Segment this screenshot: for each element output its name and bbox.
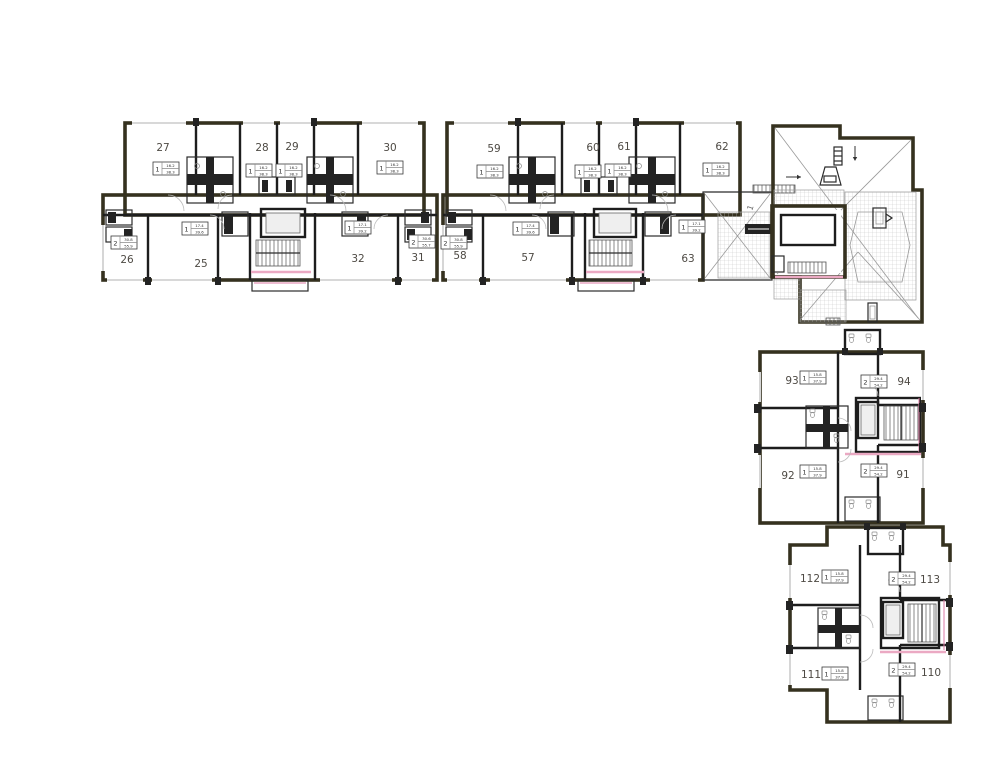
svg-text:37.9: 37.9 — [835, 674, 844, 679]
unit-number: 26 — [120, 254, 134, 266]
bath-pod-cluster — [818, 608, 860, 648]
svg-text:15.8: 15.8 — [813, 372, 822, 377]
unit-number: 91 — [896, 469, 909, 481]
unit-tag: 116.238.3 — [377, 161, 403, 174]
svg-text:54.2: 54.2 — [902, 579, 911, 584]
unit-number: 113 — [920, 574, 940, 586]
unit-tag: 115.837.9 — [822, 570, 848, 583]
unit-tag: 116.238.3 — [153, 162, 179, 175]
roof-step-icon — [826, 318, 840, 325]
unit-number: 63 — [681, 253, 694, 265]
svg-text:37.9: 37.9 — [813, 378, 822, 383]
svg-text:15.8: 15.8 — [835, 668, 844, 673]
block-b-partitions — [443, 123, 703, 280]
roof-stair-bulkhead — [772, 206, 845, 277]
svg-text:38.3: 38.3 — [716, 170, 725, 175]
svg-text:1: 1 — [379, 165, 383, 173]
unit-tag: 115.837.9 — [800, 371, 826, 384]
unit-tag: 116.238.3 — [246, 164, 272, 177]
svg-text:38.3: 38.3 — [588, 172, 597, 177]
roof-terrace — [772, 126, 922, 325]
roof-stairs-icon — [788, 262, 826, 273]
unit-number: 57 — [521, 252, 534, 264]
unit-number: 28 — [255, 142, 268, 154]
svg-text:54.2: 54.2 — [874, 471, 883, 476]
svg-text:16.2: 16.2 — [166, 163, 175, 168]
unit-number: 111 — [801, 669, 821, 681]
svg-text:1: 1 — [824, 574, 828, 582]
arrow-right-icon — [786, 175, 801, 179]
svg-text:37.9: 37.9 — [835, 577, 844, 582]
unit-number: 30 — [383, 142, 396, 154]
svg-text:1: 1 — [802, 375, 806, 383]
unit-tag: 230.655.7 — [409, 235, 435, 248]
unit-tag: 117.439.6 — [513, 222, 539, 235]
svg-text:30.8: 30.8 — [124, 237, 133, 242]
svg-text:1: 1 — [278, 168, 282, 176]
svg-text:54.2: 54.2 — [874, 382, 883, 387]
svg-text:1: 1 — [184, 226, 188, 234]
svg-text:17.4: 17.4 — [526, 223, 535, 228]
elevator-car-icon — [861, 405, 875, 435]
svg-text:16.2: 16.2 — [289, 165, 298, 170]
unit-tag: 230.855.9 — [111, 236, 137, 249]
unit-number: 32 — [351, 253, 364, 265]
unit-number: 112 — [800, 573, 820, 585]
svg-text:30.6: 30.6 — [422, 236, 431, 241]
unit-tag: 117.439.6 — [182, 222, 208, 235]
unit-tag: 116.238.3 — [477, 165, 503, 178]
svg-text:54.2: 54.2 — [902, 670, 911, 675]
svg-text:39.2: 39.2 — [692, 227, 701, 232]
elevator-car-icon — [599, 213, 631, 233]
svg-text:39.2: 39.2 — [358, 228, 367, 233]
roof-vent-icon — [820, 167, 841, 185]
svg-text:16.2: 16.2 — [490, 166, 499, 171]
svg-text:16.2: 16.2 — [259, 165, 268, 170]
svg-text:17.1: 17.1 — [358, 222, 367, 227]
unit-number: 110 — [921, 667, 941, 679]
svg-text:29.4: 29.4 — [874, 465, 883, 470]
svg-text:38.3: 38.3 — [289, 171, 298, 176]
roof-ladder-icon — [834, 147, 842, 165]
unit-tag: 116.238.3 — [575, 165, 601, 178]
bath-pod-cluster — [806, 406, 848, 448]
svg-text:38.3: 38.3 — [618, 171, 627, 176]
svg-text:1: 1 — [515, 226, 519, 234]
svg-text:29.4: 29.4 — [902, 573, 911, 578]
unit-tag: 116.238.3 — [703, 163, 729, 176]
unit-number: 93 — [785, 375, 798, 387]
unit-tag: 229.454.2 — [861, 375, 887, 388]
unit-tag: 117.139.2 — [679, 220, 705, 233]
arrow-down-icon — [853, 146, 857, 161]
svg-text:1: 1 — [479, 169, 483, 177]
unit-number: 59 — [487, 143, 500, 155]
svg-text:1: 1 — [824, 671, 828, 679]
unit-number: 61 — [617, 141, 630, 153]
svg-text:39.6: 39.6 — [195, 229, 204, 234]
svg-text:38.3: 38.3 — [490, 172, 499, 177]
svg-text:2: 2 — [891, 576, 895, 584]
unit-tag: 117.139.2 — [345, 221, 371, 234]
svg-text:39.6: 39.6 — [526, 229, 535, 234]
service-bay-bottom — [845, 497, 880, 521]
svg-text:29.4: 29.4 — [874, 376, 883, 381]
svg-text:55.9: 55.9 — [124, 243, 133, 248]
svg-text:2: 2 — [113, 240, 117, 248]
block-c — [754, 330, 926, 523]
svg-text:1: 1 — [248, 168, 252, 176]
elevator-car-icon — [886, 605, 900, 635]
svg-text:30.8: 30.8 — [454, 237, 463, 242]
svg-text:37.9: 37.9 — [813, 472, 822, 477]
svg-text:17.1: 17.1 — [692, 221, 701, 226]
unit-tag: 115.837.9 — [800, 465, 826, 478]
svg-text:16.2: 16.2 — [390, 162, 399, 167]
floor-plan-drawing: 1 — [0, 0, 993, 768]
svg-text:55.7: 55.7 — [422, 242, 431, 247]
unit-number: 60 — [586, 142, 599, 154]
unit-tag: 115.837.9 — [822, 667, 848, 680]
svg-text:1: 1 — [705, 167, 709, 175]
unit-tag: 116.238.3 — [276, 164, 302, 177]
svg-text:2: 2 — [443, 240, 447, 248]
unit-tag: 229.454.2 — [861, 464, 887, 477]
block-d — [786, 523, 953, 722]
svg-text:1: 1 — [155, 166, 159, 174]
unit-tag: 229.454.2 — [889, 572, 915, 585]
service-bay-bottom — [868, 696, 903, 720]
elevator-car-icon — [266, 213, 300, 233]
unit-number: 62 — [715, 141, 728, 153]
svg-text:38.3: 38.3 — [166, 169, 175, 174]
svg-text:29.4: 29.4 — [902, 664, 911, 669]
svg-text:16.2: 16.2 — [588, 166, 597, 171]
svg-text:1: 1 — [802, 469, 806, 477]
unit-number: 31 — [411, 252, 424, 264]
svg-text:38.3: 38.3 — [390, 168, 399, 173]
unit-tag: 116.238.3 — [605, 164, 631, 177]
svg-text:2: 2 — [891, 667, 895, 675]
unit-number: 27 — [156, 142, 169, 154]
svg-text:1: 1 — [347, 225, 351, 233]
svg-text:2: 2 — [863, 468, 867, 476]
unit-tag: 230.855.9 — [441, 236, 467, 249]
svg-text:1: 1 — [577, 169, 581, 177]
svg-text:17.4: 17.4 — [195, 223, 204, 228]
svg-text:15.8: 15.8 — [813, 466, 822, 471]
unit-number: 94 — [897, 376, 911, 388]
svg-text:38.3: 38.3 — [259, 171, 268, 176]
unit-number: 58 — [453, 250, 466, 262]
svg-text:15.8: 15.8 — [835, 571, 844, 576]
floor-plan-page: 1 — [0, 0, 993, 768]
svg-text:55.9: 55.9 — [454, 243, 463, 248]
svg-text:16.2: 16.2 — [618, 165, 627, 170]
roof-ramp-label: 1 — [745, 204, 755, 212]
svg-text:1: 1 — [607, 168, 611, 176]
svg-text:16.2: 16.2 — [716, 164, 725, 169]
svg-text:2: 2 — [411, 239, 415, 247]
unit-number: 92 — [781, 470, 794, 482]
roof-slot-icon — [868, 303, 877, 322]
unit-number: 25 — [194, 258, 207, 270]
svg-text:1: 1 — [681, 224, 685, 232]
svg-text:2: 2 — [863, 379, 867, 387]
unit-tag: 229.454.2 — [889, 663, 915, 676]
unit-number: 29 — [285, 141, 298, 153]
